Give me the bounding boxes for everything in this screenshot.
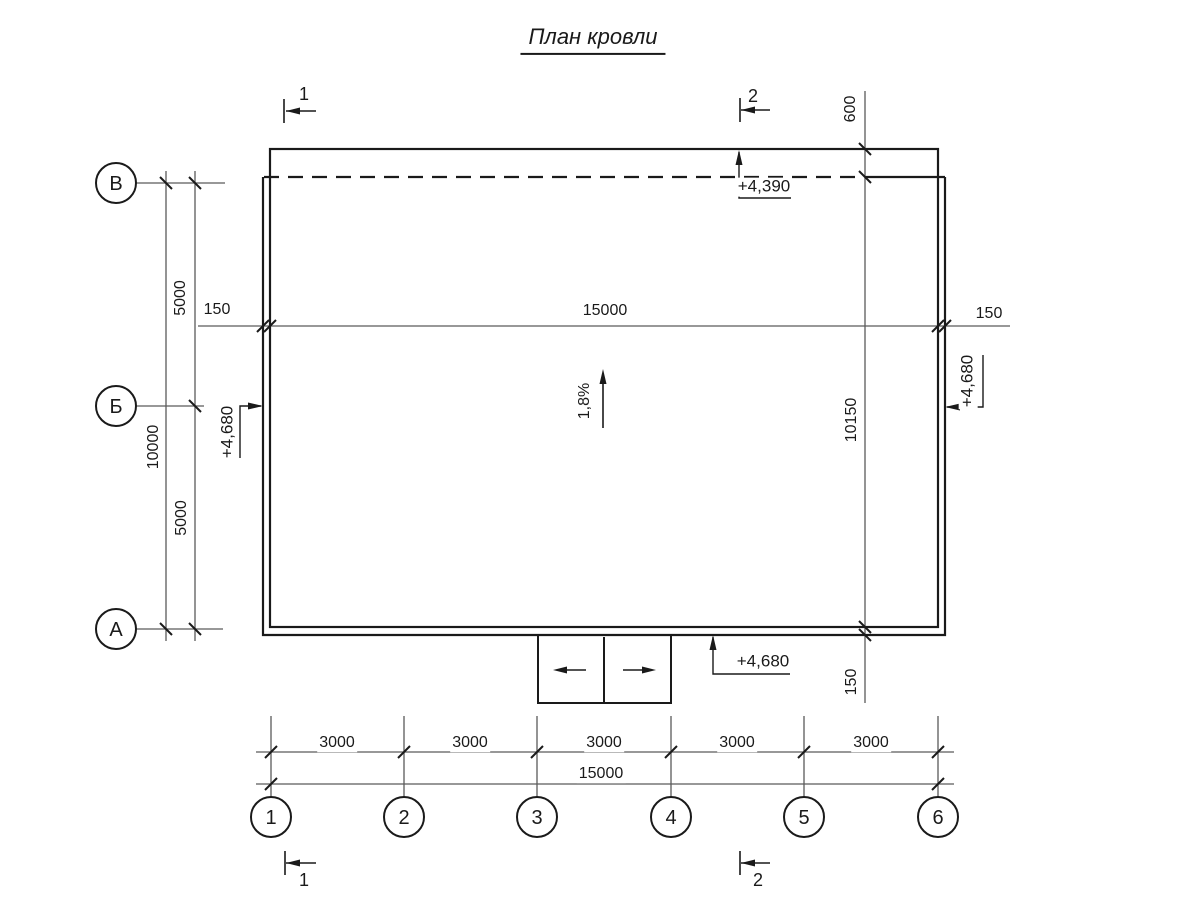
section-arrow-icon bbox=[741, 860, 755, 867]
section-cut-2-bottom-label: 2 bbox=[751, 871, 765, 891]
elevation-bottom-label: +4,680 bbox=[735, 653, 791, 672]
roof-inner-rect bbox=[270, 149, 938, 627]
ticks-vertical-dims bbox=[160, 143, 871, 641]
dim-bay-label: 3000 bbox=[317, 734, 357, 752]
dim-right-height-label: 10150 bbox=[843, 396, 861, 445]
dim-bay-label: 3000 bbox=[717, 734, 757, 752]
section-arrow-icon bbox=[286, 108, 300, 115]
axis-col-label-6: 6 bbox=[932, 807, 943, 829]
roof-plan-canvas: План кровли 1 2 1 2 +4,390 +4,680 +4,680… bbox=[0, 0, 1200, 900]
page-title: План кровли bbox=[520, 25, 665, 55]
elevation-leaders bbox=[240, 152, 983, 674]
dim-right-bottom-overhang-label: 150 bbox=[843, 667, 861, 698]
elevation-arrow-icon bbox=[710, 635, 717, 650]
elevation-right-label: +4,680 bbox=[959, 353, 978, 409]
row-axis-lines bbox=[136, 183, 225, 629]
elevation-top-label: +4,390 bbox=[736, 178, 792, 197]
slope-arrow bbox=[600, 369, 607, 428]
arrow-right-icon bbox=[642, 667, 656, 674]
section-arrow-icon bbox=[741, 107, 755, 114]
section-markers bbox=[284, 98, 770, 875]
dim-mid-width-label: 15000 bbox=[581, 302, 630, 320]
axis-col-label-2: 2 bbox=[398, 807, 409, 829]
dim-bay-label: 3000 bbox=[584, 734, 624, 752]
axis-col-label-5: 5 bbox=[798, 807, 809, 829]
dim-left-upper-label: 5000 bbox=[172, 278, 190, 318]
dim-bottom-total-label: 15000 bbox=[577, 765, 626, 783]
axis-row-label-v: В bbox=[109, 173, 122, 195]
section-cut-2-top-label: 2 bbox=[746, 87, 760, 107]
slope-label: 1,8% bbox=[576, 381, 594, 421]
elevation-left-label: +4,680 bbox=[219, 404, 238, 460]
axis-col-label-4: 4 bbox=[665, 807, 676, 829]
dim-left-lower-label: 5000 bbox=[173, 498, 191, 538]
section-cut-1-top-label: 1 bbox=[297, 85, 311, 105]
axis-col-label-1: 1 bbox=[265, 807, 276, 829]
axis-row-label-b: Б bbox=[109, 396, 122, 418]
dimension-lines bbox=[136, 91, 1010, 797]
section-arrow-icon bbox=[286, 860, 300, 867]
axis-row-label-a: А bbox=[109, 619, 122, 641]
elevation-arrow-icon bbox=[736, 150, 743, 165]
axis-col-label-3: 3 bbox=[531, 807, 542, 829]
ticks-horizontal-dims bbox=[257, 320, 951, 790]
arrow-left-icon bbox=[553, 667, 567, 674]
dim-left-total-label: 10000 bbox=[145, 423, 163, 472]
dim-bay-label: 3000 bbox=[851, 734, 891, 752]
dim-mid-right-overhang-label: 150 bbox=[974, 305, 1005, 323]
section-cut-1-bottom-label: 1 bbox=[297, 871, 311, 891]
dim-mid-left-overhang-label: 150 bbox=[202, 301, 233, 319]
axis-circles bbox=[96, 163, 958, 837]
dim-bay-label: 3000 bbox=[450, 734, 490, 752]
column-axis-stubs bbox=[271, 716, 938, 797]
building-outline bbox=[263, 149, 945, 635]
elevation-left-leader bbox=[240, 406, 261, 458]
dim-right-top-overhang-label: 600 bbox=[842, 94, 860, 125]
tick-marks bbox=[160, 143, 951, 790]
elevation-arrow-icon bbox=[248, 403, 263, 410]
slope-arrow-icon bbox=[600, 369, 607, 384]
